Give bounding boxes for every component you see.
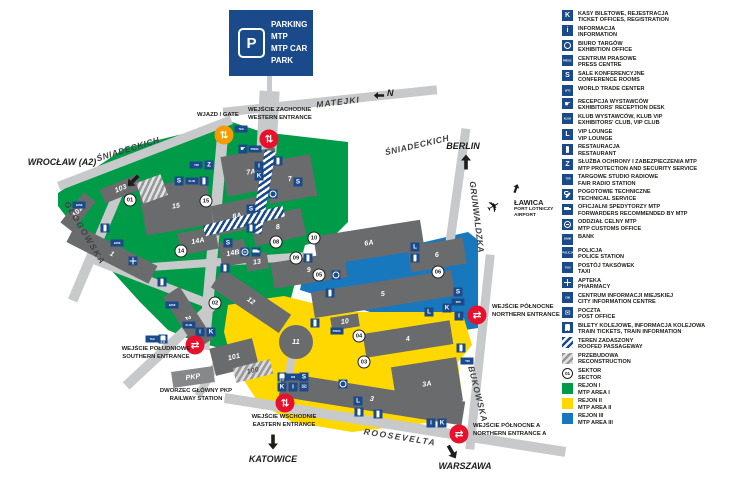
building-label: 10 xyxy=(340,318,349,326)
mtp-fairgrounds-map: P PARKING MTP MTP CAR PARK N DWORZEC GŁÓ… xyxy=(0,0,740,477)
legend-item-ticket: KKASY BILETOWE, REJESTRACJATICKET OFFICE… xyxy=(562,10,740,23)
legend-item-roofed-passageway: TEREN ZADASZONYROOFED PASSAGEWAY xyxy=(562,337,740,350)
map-icon: S xyxy=(300,373,309,382)
airplane-icon: ✈ xyxy=(483,195,505,219)
map-icon: BANK xyxy=(166,302,179,309)
map-icon: PRESS xyxy=(249,146,262,153)
legend-text-en: EXHIBITORS' CLUB, VIP CLUB xyxy=(578,120,662,126)
building-label: 12 xyxy=(246,296,257,306)
building-label: 3 xyxy=(369,395,374,403)
legend-icon-cell: ☛ xyxy=(562,98,574,109)
legend-icon-cell: Z xyxy=(562,159,574,170)
station-name-en: RAILWAY STATION xyxy=(138,396,254,402)
icon-text: BANK xyxy=(564,238,571,241)
entrance-label-en: NORTHERN ENTRANCE A xyxy=(473,431,546,439)
legend-text-pl: SEKTOR xyxy=(578,368,601,374)
building-label: 5 xyxy=(380,290,385,298)
pharmacy-glyph xyxy=(130,258,137,265)
restaurant-icon xyxy=(355,408,364,417)
legend-text: POLICJAPOLICE STATION xyxy=(578,247,624,260)
exhibition-office-icon xyxy=(332,271,341,280)
sector-badge-04: 04 xyxy=(353,330,366,343)
map-icon: i xyxy=(455,312,464,321)
sector-badge-02: 02 xyxy=(209,297,222,310)
entrance-label-en: NORTHERN ENTRANCE xyxy=(492,312,560,320)
legend-item-press: PRESSCENTRUM PRASOWEPRESS CENTRE xyxy=(562,55,740,68)
legend-text-en: RESTAURANT xyxy=(578,151,620,157)
compass-label: N xyxy=(387,88,394,98)
conference-icon: S xyxy=(224,239,233,248)
exhibition-office-icon xyxy=(269,190,278,199)
legend-item-post: ✉POCZTAPOST OFFICE xyxy=(562,307,740,320)
icon-text: BANK xyxy=(114,242,121,244)
map-icon xyxy=(374,410,383,419)
restaurant-glyph xyxy=(375,411,382,418)
legend-item-forwarders: OFICJALNI SPEDYTORZY MTPFORWARDERS RECOM… xyxy=(562,204,740,217)
direction-label-berlin: BERLIN xyxy=(446,141,480,151)
vip-lounge-icon: L xyxy=(562,129,573,140)
press-icon: PRESS xyxy=(331,328,344,335)
map-icon xyxy=(326,289,335,298)
icon-text: BANK xyxy=(169,304,176,306)
legend-text-en: FORWARDERS RECOMMENDED BY MTP xyxy=(578,211,688,217)
restaurant-icon xyxy=(247,224,256,233)
information-icon: i xyxy=(289,383,298,392)
building-label: 14A xyxy=(191,236,205,245)
sector-icon: 01 xyxy=(562,368,573,379)
legend-text: KASY BILETOWE, REJESTRACJATICKET OFFICES… xyxy=(578,10,669,23)
city-information-icon: CIM xyxy=(287,374,300,381)
restaurant-glyph xyxy=(305,255,312,262)
restaurant-glyph xyxy=(458,345,465,352)
club-icon: KLUB xyxy=(562,113,573,124)
map-icon: KLUB xyxy=(186,178,199,185)
legend-text: POSTÓJ TAKSÓWEKTAXI xyxy=(578,262,634,275)
building-label: 3A xyxy=(422,380,432,388)
legend-icon-cell: i xyxy=(562,25,574,36)
legend-text-en: TAXI xyxy=(578,269,634,275)
restaurant-icon xyxy=(221,264,230,273)
ticket-icon: K xyxy=(207,328,216,337)
forwarders-glyph xyxy=(252,249,260,255)
legend-text-en: POST OFFICE xyxy=(578,314,615,320)
radio-icon: TSR xyxy=(461,358,474,365)
legend-text: BANK xyxy=(578,234,594,241)
legend-icon-cell xyxy=(562,189,574,200)
conference-icon: S xyxy=(247,205,256,214)
restaurant-icon xyxy=(274,157,283,166)
ticket-icon: K xyxy=(443,304,452,313)
legend-text-pl: TARGOWE STUDIO RADIOWE xyxy=(578,174,658,180)
entrance-western-label: WEJŚCIE ZACHODNIEWESTERN ENTRANCE xyxy=(248,107,312,122)
map-icon: TSR xyxy=(461,358,474,365)
map-icon: TAXI xyxy=(235,126,248,133)
bank-icon: BANK xyxy=(166,302,179,309)
legend-item-police: POLICJAPOLICJAPOLICE STATION xyxy=(562,247,740,260)
airport-name: ŁAWICA xyxy=(514,198,553,207)
restaurant-icon xyxy=(562,144,573,155)
press-icon: PRESS xyxy=(562,55,573,66)
restaurant-glyph xyxy=(412,255,419,262)
legend-text: SŁUŻBA OCHRONY I ZABEZPIECZENIA MTPMTP P… xyxy=(578,159,697,172)
entrance-northern-a-label: WEJŚCIE PÓŁNOCNE ANORTHERN ENTRANCE A xyxy=(473,423,546,438)
building-label: 100 xyxy=(246,366,260,376)
restaurant-glyph xyxy=(248,225,255,232)
legend-icon-cell: S xyxy=(562,70,574,81)
icon-text: TSR xyxy=(465,360,470,362)
legend-item-city-information: CIMCENTRUM INFORMACJI MIEJSKIEJCITY INFO… xyxy=(562,292,740,305)
sector-badge-01: 01 xyxy=(124,194,137,207)
sector-badge-14: 14 xyxy=(175,245,188,258)
customs-glyph xyxy=(242,249,249,256)
map-icon xyxy=(278,373,287,382)
legend-item-bank: BANKBANK xyxy=(562,234,740,246)
train-glyph xyxy=(565,324,571,331)
legend-item-security: ZSŁUŻBA OCHRONY I ZABEZPIECZENIA MTPMTP … xyxy=(562,159,740,172)
exhibition-office-glyph xyxy=(270,191,277,198)
pharmacy-icon xyxy=(129,257,138,266)
legend-text: TARGOWE STUDIO RADIOWEFAIR RADIO STATION xyxy=(578,174,658,187)
airport-sub-en: AIRPORT xyxy=(514,213,553,219)
post-icon: ✉ xyxy=(562,307,573,318)
legend-item-club: KLUBKLUB WYSTAWCÓW, KLUB VIPEXHIBITORS' … xyxy=(562,113,740,126)
restaurant-glyph xyxy=(327,290,334,297)
restaurant-glyph xyxy=(102,225,109,232)
map-icon xyxy=(411,254,420,263)
direction-arrow-katowice-icon xyxy=(268,435,278,450)
pharmacy-glyph xyxy=(564,279,571,286)
bank-icon: BANK xyxy=(562,234,573,245)
vip-lounge-icon: L xyxy=(411,243,420,252)
entrance-northern-label: WEJŚCIE PÓŁNOCNENORTHERN ENTRANCE xyxy=(492,304,560,319)
train-icon xyxy=(159,335,168,344)
direction-arrow-warszawa-icon xyxy=(444,443,460,461)
train-glyph xyxy=(160,336,166,343)
legend-text: POCZTAPOST OFFICE xyxy=(578,307,615,320)
building-label: 101 xyxy=(227,352,241,362)
entrance-label-en: SOUTHERN ENTRANCE xyxy=(116,354,196,362)
entrance-northern-a-icon: ⇄ xyxy=(450,425,469,444)
legend-icon-cell: POLICJA xyxy=(562,247,574,258)
restaurant-glyph xyxy=(312,320,319,327)
legend-item-pharmacy: APTEKAPHARMACY xyxy=(562,277,740,290)
gate-icon: ⇅ xyxy=(215,126,234,145)
legend-text: SALE KONFERENCYJNECONFERENCE ROOMS xyxy=(578,70,645,83)
exhibition-office-glyph xyxy=(564,42,571,49)
legend-text: POGOTOWIE TECHNICZNETECHNICAL SERVICE xyxy=(578,189,651,202)
exhibition-office-icon xyxy=(562,40,573,51)
forwarders-icon xyxy=(252,248,261,257)
compass: N xyxy=(374,88,394,103)
map-icon: KLUB xyxy=(183,322,196,329)
map-icon: i xyxy=(289,383,298,392)
conference-icon: S xyxy=(300,373,309,382)
legend-icon-cell xyxy=(562,219,574,230)
building-11: 11 xyxy=(279,325,313,359)
forwarders-glyph xyxy=(564,206,572,212)
legend-icon-cell: KLUB xyxy=(562,113,574,124)
map-icon: L xyxy=(425,308,434,317)
map-icon xyxy=(221,264,230,273)
map-icon xyxy=(355,408,364,417)
parking-sign-line2: MTP CAR PARK xyxy=(271,43,313,67)
legend-text-en: MTP AREA II xyxy=(578,405,611,411)
restaurant-glyph xyxy=(564,146,571,153)
vip-lounge-icon: L xyxy=(425,308,434,317)
exhibition-office-glyph xyxy=(340,381,347,388)
legend-text-en: VIP LOUNGE xyxy=(578,136,612,142)
map-icon xyxy=(252,248,261,257)
building-label: 14B xyxy=(226,248,240,257)
legend-text-en: EXHIBITION OFFICE xyxy=(578,47,632,53)
map-icon: L xyxy=(411,243,420,252)
legend-text-pl: POGOTOWIE TECHNICZNE xyxy=(578,189,651,195)
direction-label-katowice: KATOWICE xyxy=(249,454,297,464)
forwarders-icon xyxy=(562,204,573,215)
restaurant-glyph xyxy=(275,158,282,165)
map-icon: CIM xyxy=(287,374,300,381)
map-icon: K xyxy=(255,172,264,181)
legend-icon-cell xyxy=(562,413,574,424)
legend-text: REJON IMTP AREA I xyxy=(578,383,610,396)
customs-icon xyxy=(562,219,573,230)
restaurant-icon xyxy=(158,278,167,287)
legend-text: WORLD TRADE CENTER xyxy=(578,85,645,92)
legend-text-pl: SŁUŻBA OCHRONY I ZABEZPIECZENIA MTP xyxy=(578,159,697,165)
icon-text: PRESS xyxy=(563,59,572,62)
building-label: PKP xyxy=(185,372,201,381)
map-icon xyxy=(129,257,138,266)
map-icon xyxy=(269,190,278,199)
building-label: 6 xyxy=(434,251,439,259)
legend-icon-cell: WTC xyxy=(562,85,574,96)
entrance-label-pl: WEJŚCIE WSCHODNIE xyxy=(245,414,323,422)
entrance-southern-label: WEJŚCIE POŁUDNIOWESOUTHERN ENTRANCE xyxy=(116,346,196,361)
map-icon: K xyxy=(443,304,452,313)
building-label: 11 xyxy=(292,339,300,346)
legend-item-radio: TSRTARGOWE STUDIO RADIOWEFAIR RADIO STAT… xyxy=(562,174,740,187)
legend-text: CENTRUM INFORMACJI MIEJSKIEJCITY INFORMA… xyxy=(578,292,673,305)
customs-glyph xyxy=(564,221,571,228)
legend-text: BILETY KOLEJOWE, INFORMACJA KOLEJOWATRAI… xyxy=(578,322,705,335)
parking-icon: P xyxy=(238,28,265,58)
security-icon: Z xyxy=(562,159,573,170)
map-icon xyxy=(332,271,341,280)
legend-text: BIURO TARGÓWEXHIBITION OFFICE xyxy=(578,40,632,53)
club-icon: KLUB xyxy=(183,322,196,329)
sector-badge-03: 03 xyxy=(358,356,371,369)
train-glyph xyxy=(279,374,285,381)
legend-text: VIP LOUNGEVIP LOUNGE xyxy=(578,129,612,142)
legend-text-en: CONFERENCE ROOMS xyxy=(578,77,645,83)
taxi-icon: TAXI xyxy=(562,262,573,273)
building-label: 7 xyxy=(287,175,292,183)
club-icon: KLUB xyxy=(186,178,199,185)
legend-icon-cell: TAXI xyxy=(562,262,574,273)
map-icon xyxy=(311,319,320,328)
map-icon: BANK xyxy=(111,240,124,247)
entrance-label-pl: WEJŚCIE PÓŁNOCNE A xyxy=(473,423,546,431)
legend-text-en: TICKET OFFICES, REGISTRATION xyxy=(578,17,669,23)
map-icon: S xyxy=(294,178,303,187)
radio-icon: TSR xyxy=(562,174,573,185)
map-icon: S xyxy=(224,239,233,248)
legend-item-taxi: TAXIPOSTÓJ TAKSÓWEKTAXI xyxy=(562,262,740,275)
wtc-icon: WTC xyxy=(562,85,573,96)
reconstruction-icon xyxy=(562,353,573,364)
map-icon xyxy=(101,224,110,233)
legend-item-vip-lounge: LVIP LOUNGEVIP LOUNGE xyxy=(562,129,740,142)
map-icon: Z xyxy=(205,161,214,170)
map-icon xyxy=(274,157,283,166)
icon-text: TAXI xyxy=(149,338,154,340)
building-label: 103 xyxy=(114,183,128,194)
building-label: 1 xyxy=(109,250,116,258)
map-icon: S xyxy=(247,205,256,214)
legend-text-en: RECONSTRUCTION xyxy=(578,359,631,365)
legend-item-sector: 01SEKTORSECTOR xyxy=(562,368,740,381)
legend-icon-cell: CIM xyxy=(562,292,574,303)
entrance-label-pl: WEJŚCIE PÓŁNOCNE xyxy=(492,304,560,312)
map-icon: K xyxy=(278,383,287,392)
restaurant-icon xyxy=(326,289,335,298)
entrance-eastern-label: WEJŚCIE WSCHODNIEEASTERN ENTRANCE xyxy=(245,414,323,429)
legend-text: PRZEBUDOWARECONSTRUCTION xyxy=(578,353,631,366)
sector-badge-09: 09 xyxy=(290,252,303,265)
restaurant-icon xyxy=(101,224,110,233)
sector-badge-06: 06 xyxy=(432,266,445,279)
legend-icon-cell xyxy=(562,337,574,348)
legend-text: TEREN ZADASZONYROOFED PASSAGEWAY xyxy=(578,337,643,350)
north-arrow-icon xyxy=(374,92,385,99)
sector-badge-10: 10 xyxy=(308,232,321,245)
icon-text: KLUB xyxy=(186,324,192,326)
icon-text: POLICJA xyxy=(562,251,573,254)
legend-item-area-3: REJON IIIMTP AREA III xyxy=(562,413,740,426)
area-2-icon xyxy=(562,398,573,409)
entrance-western-icon: ⇅ xyxy=(260,130,279,149)
exhibition-office-glyph xyxy=(333,272,340,279)
ticket-icon: K xyxy=(562,10,573,21)
legend-text-en: PRESS CENTRE xyxy=(578,62,636,68)
information-icon: i xyxy=(455,312,464,321)
street-label-sniadeckich-east: ŚNIADECKICH xyxy=(384,133,450,158)
legend-text: REJON IIIMTP AREA III xyxy=(578,413,613,426)
exhibition-office-icon xyxy=(339,380,348,389)
map-icon xyxy=(200,177,209,186)
legend-text: OFICJALNI SPEDYTORZY MTPFORWARDERS RECOM… xyxy=(578,204,688,217)
map-icon: i xyxy=(255,162,264,171)
legend-text: INFORMACJAINFORMATION xyxy=(578,25,617,38)
legend-text: REJON IIMTP AREA II xyxy=(578,398,611,411)
legend-text: CENTRUM PRASOWEPRESS CENTRE xyxy=(578,55,636,68)
legend-text-en: INFORMATION xyxy=(578,32,617,38)
restaurant-icon xyxy=(374,410,383,419)
restaurant-icon xyxy=(304,254,313,263)
legend-icon-cell: L xyxy=(562,129,574,140)
train-icon xyxy=(562,322,573,333)
legend-text-en: FAIR RADIO STATION xyxy=(578,181,658,187)
city-information-icon: CIM xyxy=(562,292,573,303)
legend-item-information: iINFORMACJAINFORMATION xyxy=(562,25,740,38)
customs-icon xyxy=(241,248,250,257)
entrance-label-en: WESTERN ENTRANCE xyxy=(248,115,312,123)
legend-text-pl: ODDZIAŁ CELNY MTP xyxy=(578,219,641,225)
taxi-icon: TAXI xyxy=(235,126,248,133)
map-icon: PRESS xyxy=(331,328,344,335)
wtc-icon: WTC xyxy=(452,299,465,306)
map-icon: TSR xyxy=(190,162,203,169)
legend-item-restaurant: RESTAURACJARESTAURANT xyxy=(562,144,740,157)
restaurant-icon xyxy=(311,319,320,328)
area-1-icon xyxy=(562,383,573,394)
map-icon xyxy=(457,344,466,353)
restaurant-glyph xyxy=(201,178,208,185)
icon-text: TSR xyxy=(565,178,570,181)
legend-text-en: MTP PROTECTION AND SECURITY SERVICE xyxy=(578,166,697,172)
legend-item-conference: SSALE KONFERENCYJNECONFERENCE ROOMS xyxy=(562,70,740,83)
legend-text-en: TRAIN TICKETS, TRAIN INFORMATION xyxy=(578,329,705,335)
legend-text-en: MTP AREA III xyxy=(578,420,613,426)
map-icon: S xyxy=(454,288,463,297)
legend-icon-cell: K xyxy=(562,10,574,21)
entrance-eastern-icon: ⇅ xyxy=(276,394,295,413)
map-icon: TAXI xyxy=(146,336,159,343)
information-icon: i xyxy=(255,162,264,171)
legend-item-exhibition-office: BIURO TARGÓWEXHIBITION OFFICE xyxy=(562,40,740,53)
map-icon xyxy=(304,254,313,263)
legend-item-train: BILETY KOLEJOWE, INFORMACJA KOLEJOWATRAI… xyxy=(562,322,740,335)
station-name-pl: DWORZEC GŁÓWNY PKP xyxy=(138,388,254,394)
entrance-label-en: EASTERN ENTRANCE xyxy=(245,422,323,430)
restaurant-icon xyxy=(457,344,466,353)
map-icon xyxy=(339,380,348,389)
icon-text: TAXI xyxy=(238,128,243,130)
legend-text-en: MTP AREA I xyxy=(578,390,610,396)
icon-text: BANK xyxy=(76,204,83,206)
bank-icon: BANK xyxy=(111,240,124,247)
police-icon: POLICJA xyxy=(562,247,573,258)
icon-text: CIM xyxy=(565,296,570,299)
conference-icon: S xyxy=(562,70,573,81)
map-icon: K xyxy=(438,419,447,428)
legend-icon-cell: PRESS xyxy=(562,55,574,66)
reception-icon: ☛ xyxy=(562,98,573,109)
legend-item-reconstruction: PRZEBUDOWARECONSTRUCTION xyxy=(562,353,740,366)
parking-sign: P PARKING MTP MTP CAR PARK xyxy=(229,10,313,76)
conference-icon: S xyxy=(454,288,463,297)
map-icon xyxy=(247,224,256,233)
legend-item-customs: ODDZIAŁ CELNY MTPMTP CUSTOMS OFFICE xyxy=(562,219,740,232)
legend-text-en: MTP CUSTOMS OFFICE xyxy=(578,226,641,232)
airport-arrow-icon xyxy=(511,183,520,194)
sector-badge-05: 05 xyxy=(313,269,326,282)
restaurant-glyph xyxy=(356,409,363,416)
ticket-icon: K xyxy=(255,172,264,181)
conference-icon: S xyxy=(294,178,303,187)
icon-text: TSR xyxy=(194,164,199,166)
map-icon: i xyxy=(427,419,436,428)
area-3-icon xyxy=(562,413,573,424)
restaurant-icon xyxy=(411,254,420,263)
legend-icon-cell: 01 xyxy=(562,368,574,379)
radio-icon: TSR xyxy=(190,162,203,169)
sector-badge-15: 15 xyxy=(200,195,213,208)
legend-text: RESTAURACJARESTAURANT xyxy=(578,144,620,157)
roofed-passageway-icon xyxy=(562,337,573,348)
ticket-icon: K xyxy=(438,419,447,428)
icon-text: TAXI xyxy=(565,266,571,269)
